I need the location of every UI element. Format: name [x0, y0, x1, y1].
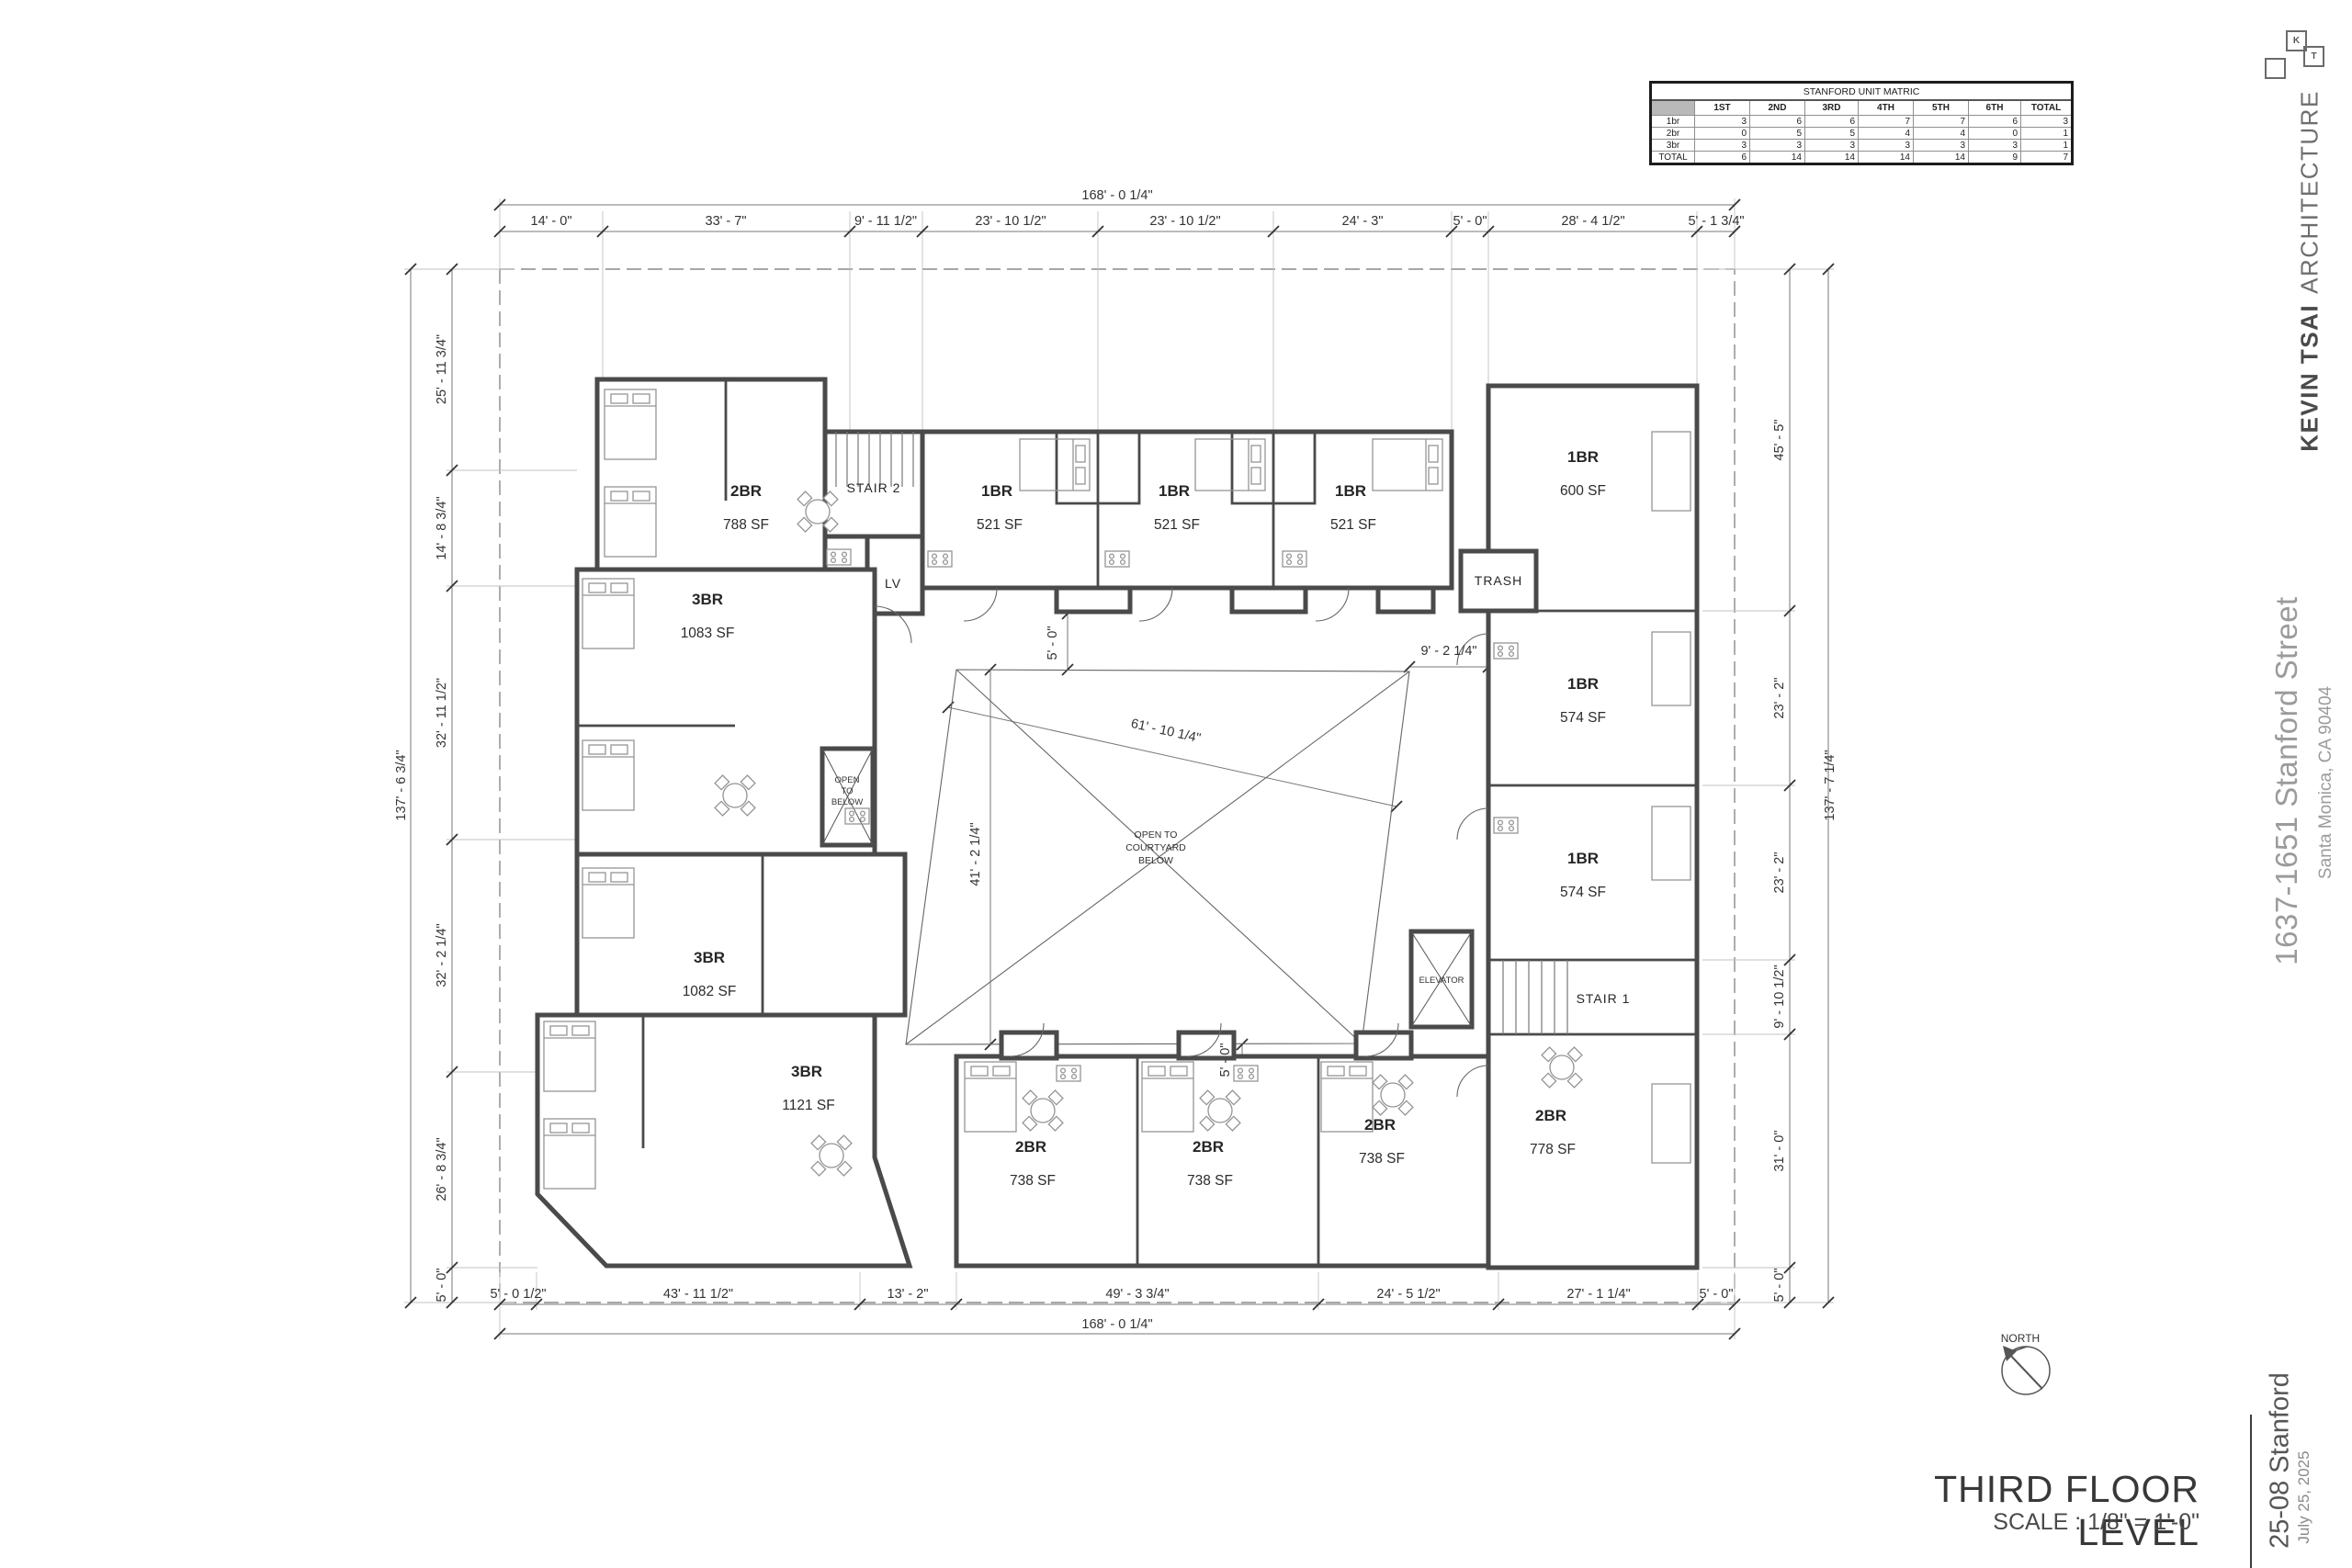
- unit-area: 1121 SF: [782, 1098, 834, 1113]
- matrix-header-cell: 5TH: [1914, 100, 1969, 116]
- dim-right-seg: 23' - 2": [1772, 852, 1787, 894]
- project-city: Santa Monica, CA 90404: [2316, 686, 2336, 879]
- north-arrow-icon: [2002, 1346, 2050, 1394]
- dim-left-seg: 14' - 8 3/4": [435, 496, 449, 559]
- unit-area: 778 SF: [1530, 1142, 1576, 1157]
- unit-area: 738 SF: [1359, 1151, 1405, 1167]
- dim-right-seg: 45' - 5": [1772, 420, 1787, 461]
- dim-right-seg: 9' - 10 1/2": [1772, 964, 1787, 1028]
- stair2-label: STAIR 2: [847, 480, 901, 495]
- matrix-header-cell: 1ST: [1695, 100, 1750, 116]
- unit-matrix-table: STANFORD UNIT MATRIC 1ST 2ND 3RD 4TH 5TH…: [1649, 81, 2074, 165]
- matrix-header-cell: 4TH: [1859, 100, 1914, 116]
- matrix-cell: 1: [2021, 128, 2073, 140]
- dim-courtyard-gap-right: 9' - 2 1/4": [1420, 644, 1476, 659]
- dim-bottom-seg: 5' - 0": [1700, 1287, 1734, 1302]
- dim-top-overall: 168' - 0 1/4": [1081, 188, 1152, 203]
- matrix-cell: 5: [1805, 128, 1859, 140]
- sheet-scale: SCALE : 1/8" = 1'-0": [1828, 1509, 2199, 1536]
- dim-bottom-seg: 5' - 0 1/2": [490, 1287, 546, 1302]
- matrix-header-cell: [1651, 100, 1695, 116]
- matrix-cell: 5: [1750, 128, 1805, 140]
- firm-name: KEVIN TSAIARCHITECTURE: [2296, 90, 2324, 452]
- unit-label: 3BR: [694, 949, 725, 966]
- unit-area: 1082 SF: [683, 984, 737, 999]
- project-street: 1637-1651 Stanford Street: [2269, 596, 2304, 964]
- trash-label: TRASH: [1475, 573, 1522, 588]
- matrix-cell: 3: [2021, 116, 2073, 128]
- matrix-cell: 14: [1750, 152, 1805, 164]
- dim-right-seg: 23' - 2": [1772, 678, 1787, 719]
- matrix-cell: 0: [1695, 128, 1750, 140]
- dim-right-seg: 5' - 0": [1772, 1269, 1787, 1303]
- matrix-header-cell: 6TH: [1969, 100, 2021, 116]
- unit-label: 2BR: [1193, 1138, 1224, 1156]
- dim-top-seg: 14' - 0": [531, 214, 572, 229]
- dim-top-seg: 5' - 1 3/4": [1688, 214, 1744, 229]
- matrix-row-label: TOTAL: [1651, 152, 1695, 164]
- matrix-title: STANFORD UNIT MATRIC: [1651, 83, 2073, 101]
- matrix-cell: 1: [2021, 140, 2073, 152]
- dim-top-seg: 24' - 3": [1342, 214, 1384, 229]
- dim-top-seg: 23' - 10 1/2": [975, 214, 1046, 229]
- building-walls: [537, 379, 1697, 1268]
- dim-bottom-seg: 43' - 11 1/2": [663, 1287, 733, 1302]
- unit-label: 1BR: [1335, 482, 1366, 500]
- dim-top-seg: 28' - 4 1/2": [1561, 214, 1624, 229]
- project-number: 25-08 Stanford: [2266, 1372, 2296, 1549]
- north-label: NORTH: [2001, 1332, 2040, 1345]
- unit-area: 738 SF: [1187, 1173, 1233, 1189]
- dim-left-seg: 5' - 0": [435, 1269, 449, 1303]
- project-date: July 25, 2025: [2295, 1450, 2313, 1543]
- unit-label: 3BR: [791, 1063, 822, 1080]
- matrix-row-2br: 2br 0 5 5 4 4 0 1: [1651, 128, 2073, 140]
- lv-label: LV: [885, 576, 901, 591]
- unit-area: 574 SF: [1560, 885, 1606, 900]
- matrix-cell: 3: [1859, 140, 1914, 152]
- matrix-cell: 3: [1695, 140, 1750, 152]
- matrix-header-row: 1ST 2ND 3RD 4TH 5TH 6TH TOTAL: [1651, 100, 2073, 116]
- unit-area: 521 SF: [1330, 517, 1376, 533]
- open-courtyard-label: COURTYARD: [1125, 842, 1186, 853]
- open-courtyard-label: BELOW: [1138, 855, 1173, 866]
- dim-courtyard-gap-bottom: 5' - 0": [1218, 1043, 1233, 1077]
- dim-courtyard-height: 41' - 2 1/4": [968, 822, 983, 886]
- matrix-row-total: TOTAL 6 14 14 14 14 9 7: [1651, 152, 2073, 164]
- dim-bottom-seg: 24' - 5 1/2": [1376, 1287, 1440, 1302]
- unit-label: 3BR: [692, 591, 723, 608]
- matrix-header-cell: 3RD: [1805, 100, 1859, 116]
- unit-label: 1BR: [1567, 675, 1599, 693]
- dim-bottom-seg: 13' - 2": [888, 1287, 929, 1302]
- matrix-cell: 4: [1914, 128, 1969, 140]
- matrix-cell: 3: [1914, 140, 1969, 152]
- unit-area: 738 SF: [1010, 1173, 1056, 1189]
- shaft-x-marks: [822, 749, 1472, 1027]
- dim-courtyard-gap-top: 5' - 0": [1046, 626, 1060, 660]
- open-below-label: BELOW: [831, 797, 863, 807]
- unit-label: 2BR: [1364, 1116, 1396, 1134]
- dim-left-seg: 32' - 2 1/4": [435, 923, 449, 987]
- logo-t-icon: T: [2303, 46, 2324, 67]
- matrix-cell: 14: [1859, 152, 1914, 164]
- firm-name-bold: KEVIN TSAI: [2296, 304, 2324, 452]
- unit-label: 1BR: [981, 482, 1012, 500]
- open-below-label: OPEN: [835, 775, 860, 785]
- dim-courtyard-diagonal: 61' - 10 1/4": [1129, 716, 1202, 746]
- dim-bottom-seg: 49' - 3 3/4": [1105, 1287, 1169, 1302]
- matrix-cell: 7: [1859, 116, 1914, 128]
- matrix-header-cell: 2ND: [1750, 100, 1805, 116]
- matrix-row-1br: 1br 3 6 6 7 7 6 3: [1651, 116, 2073, 128]
- matrix-cell: 3: [1750, 140, 1805, 152]
- dim-top-seg: 5' - 0": [1453, 214, 1487, 229]
- matrix-row-3br: 3br 3 3 3 3 3 3 1: [1651, 140, 2073, 152]
- matrix-cell: 6: [1695, 152, 1750, 164]
- dim-bottom-seg: 27' - 1 1/4": [1566, 1287, 1630, 1302]
- elevator-label: ELEVATOR: [1419, 976, 1464, 986]
- matrix-row-label: 1br: [1651, 116, 1695, 128]
- dim-right-overall: 137' - 7 1/4": [1823, 750, 1837, 820]
- matrix-cell: 6: [1969, 116, 2021, 128]
- unit-area: 521 SF: [977, 517, 1023, 533]
- matrix-cell: 4: [1859, 128, 1914, 140]
- dim-left-seg: 32' - 11 1/2": [435, 678, 449, 748]
- logo-blank-icon: [2265, 58, 2286, 79]
- dim-left-seg: 25' - 11 3/4": [435, 334, 449, 404]
- matrix-cell: 3: [1969, 140, 2021, 152]
- open-courtyard-label: OPEN TO: [1135, 829, 1178, 840]
- unit-label: 2BR: [730, 482, 762, 500]
- dim-left-seg: 26' - 8 3/4": [435, 1137, 449, 1201]
- matrix-cell: 14: [1805, 152, 1859, 164]
- unit-label: 2BR: [1535, 1107, 1566, 1124]
- matrix-cell: 3: [1805, 140, 1859, 152]
- matrix-cell: 6: [1750, 116, 1805, 128]
- open-below-label: TO: [841, 786, 853, 796]
- matrix-cell: 7: [2021, 152, 2073, 164]
- firm-name-rest: ARCHITECTURE: [2296, 90, 2324, 294]
- unit-area: 1083 SF: [681, 626, 735, 641]
- dim-bottom-overall: 168' - 0 1/4": [1081, 1317, 1152, 1332]
- unit-label: 1BR: [1567, 448, 1599, 466]
- unit-label: 1BR: [1159, 482, 1190, 500]
- dim-left-overall: 137' - 6 3/4": [394, 750, 409, 820]
- matrix-cell: 14: [1914, 152, 1969, 164]
- matrix-row-label: 2br: [1651, 128, 1695, 140]
- matrix-cell: 3: [1695, 116, 1750, 128]
- matrix-row-label: 3br: [1651, 140, 1695, 152]
- matrix-cell: 9: [1969, 152, 2021, 164]
- dim-right-seg: 31' - 0": [1772, 1131, 1787, 1172]
- dim-top-seg: 23' - 10 1/2": [1149, 214, 1220, 229]
- unit-label: 1BR: [1567, 850, 1599, 867]
- unit-area: 600 SF: [1560, 483, 1606, 499]
- matrix-cell: 7: [1914, 116, 1969, 128]
- unit-area: 574 SF: [1560, 710, 1606, 726]
- unit-area: 788 SF: [723, 517, 769, 533]
- dim-top-seg: 9' - 11 1/2": [854, 214, 917, 229]
- titleblock-divider: [2250, 1415, 2252, 1568]
- drawing-sheet: 168' - 0 1/4" 14' - 0" 33' - 7" 9' - 11 …: [0, 0, 2352, 1568]
- dim-top-seg: 33' - 7": [706, 214, 747, 229]
- matrix-cell: 6: [1805, 116, 1859, 128]
- stair1-label: STAIR 1: [1577, 991, 1631, 1006]
- matrix-cell: 0: [1969, 128, 2021, 140]
- unit-label: 2BR: [1015, 1138, 1046, 1156]
- matrix-header-cell: TOTAL: [2021, 100, 2073, 116]
- floor-plan-svg: 168' - 0 1/4" 14' - 0" 33' - 7" 9' - 11 …: [0, 0, 2352, 1568]
- unit-area: 521 SF: [1154, 517, 1200, 533]
